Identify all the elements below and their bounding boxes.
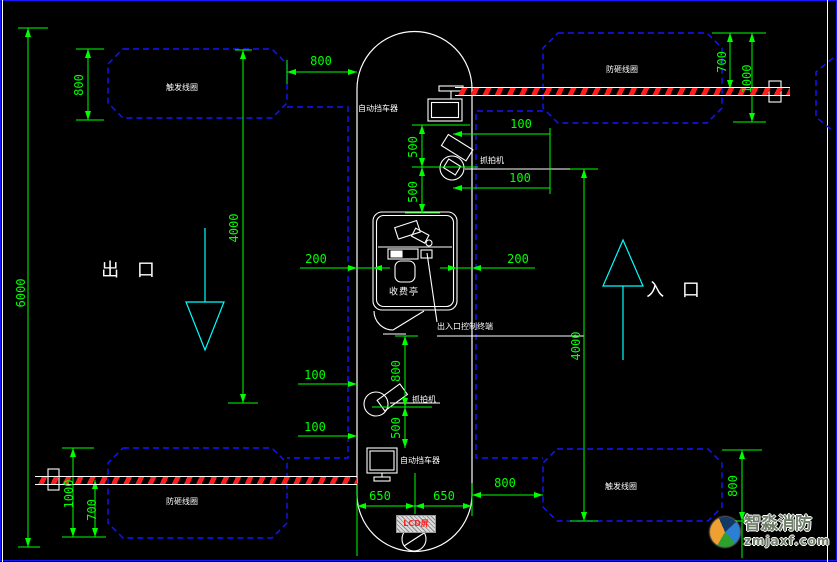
dim-100-bottom-1: 100 [304, 369, 326, 381]
dim-4000-entry-lane: 4000 [570, 332, 582, 361]
toll-booth-label: 收费亭 [389, 289, 419, 298]
dim-1000-top-right: 1000 [741, 65, 753, 94]
dim-1000-bottom-left: 1000 [63, 480, 75, 509]
dim-4000-exit-lane: 4000 [228, 214, 240, 243]
dim-650-island-left: 650 [369, 490, 391, 502]
booth-chair [395, 261, 415, 282]
dim-500-bottom-center: 500 [390, 417, 402, 439]
leader-terminal [427, 253, 437, 322]
dim-6000-site-height: 6000 [15, 279, 27, 308]
lcd-stamp-text: LCD屏 [403, 520, 429, 528]
detection-coils [108, 33, 833, 538]
dim-500-top-2: 500 [407, 181, 419, 203]
dim-800-bottom-center: 800 [390, 360, 402, 382]
entrance-direction-arrow [603, 240, 643, 360]
exit-direction-arrow [186, 228, 224, 350]
control-terminal-label: 出入口控制终端 [437, 323, 493, 331]
barrier-machine-bottom [367, 448, 397, 473]
coil-partial-top-right [816, 58, 833, 131]
watermark-site: zmjaxf.com [744, 535, 830, 547]
lane-boundary-left [287, 107, 348, 458]
dim-100-bottom-2: 100 [304, 421, 326, 433]
dim-650-island-right: 650 [433, 490, 455, 502]
entrance-label: 入 口 [646, 282, 706, 300]
dim-700-bottom-left: 700 [86, 499, 98, 521]
barrier-arm-bottom [35, 476, 357, 485]
watermark-brand: 智淼消防 [744, 516, 830, 533]
watermark-logo-icon [710, 517, 740, 547]
dim-800-bottom-gap: 800 [494, 477, 516, 489]
dim-800-top-gap: 800 [310, 55, 332, 67]
dim-500-top-1: 500 [407, 136, 419, 158]
booth-door-swing [374, 311, 393, 330]
coil-bottom-left [108, 448, 287, 538]
booth-door-leaf [393, 311, 424, 330]
booth-monitor [395, 221, 421, 240]
capture-camera-label-top: 抓拍机 [480, 157, 504, 165]
watermark: 智淼消防 zmjaxf.com [710, 516, 830, 547]
dim-100-top-1: 100 [510, 118, 532, 130]
cad-parking-layout-drawing: 6000 800 4000 500 500 4000 800 500 700 1… [0, 0, 837, 562]
dim-100-top-2: 100 [509, 172, 531, 184]
dim-800-coil-br-height: 800 [727, 475, 739, 497]
coil-label-bottom-left: 防砸线圈 [166, 498, 198, 506]
lcd-stamp: LCD屏 [396, 515, 436, 533]
dim-700-top-right: 700 [716, 51, 728, 73]
exit-label: 出 口 [101, 262, 161, 280]
coil-label-top-right: 防砸线圈 [606, 66, 638, 74]
coil-label-bottom-right: 触发线圈 [605, 483, 637, 491]
capture-camera-label-bottom: 抓拍机 [412, 396, 436, 404]
auto-barrier-label-bottom: 自动挡车器 [400, 457, 440, 465]
dim-200-booth-left: 200 [305, 253, 327, 265]
dim-800-coil-tl-height: 800 [73, 74, 85, 96]
auto-barrier-label-top: 自动挡车器 [358, 105, 398, 113]
coil-top-right [543, 33, 722, 123]
dim-200-booth-right: 200 [507, 253, 529, 265]
coil-label-top-left: 触发线圈 [166, 84, 198, 92]
